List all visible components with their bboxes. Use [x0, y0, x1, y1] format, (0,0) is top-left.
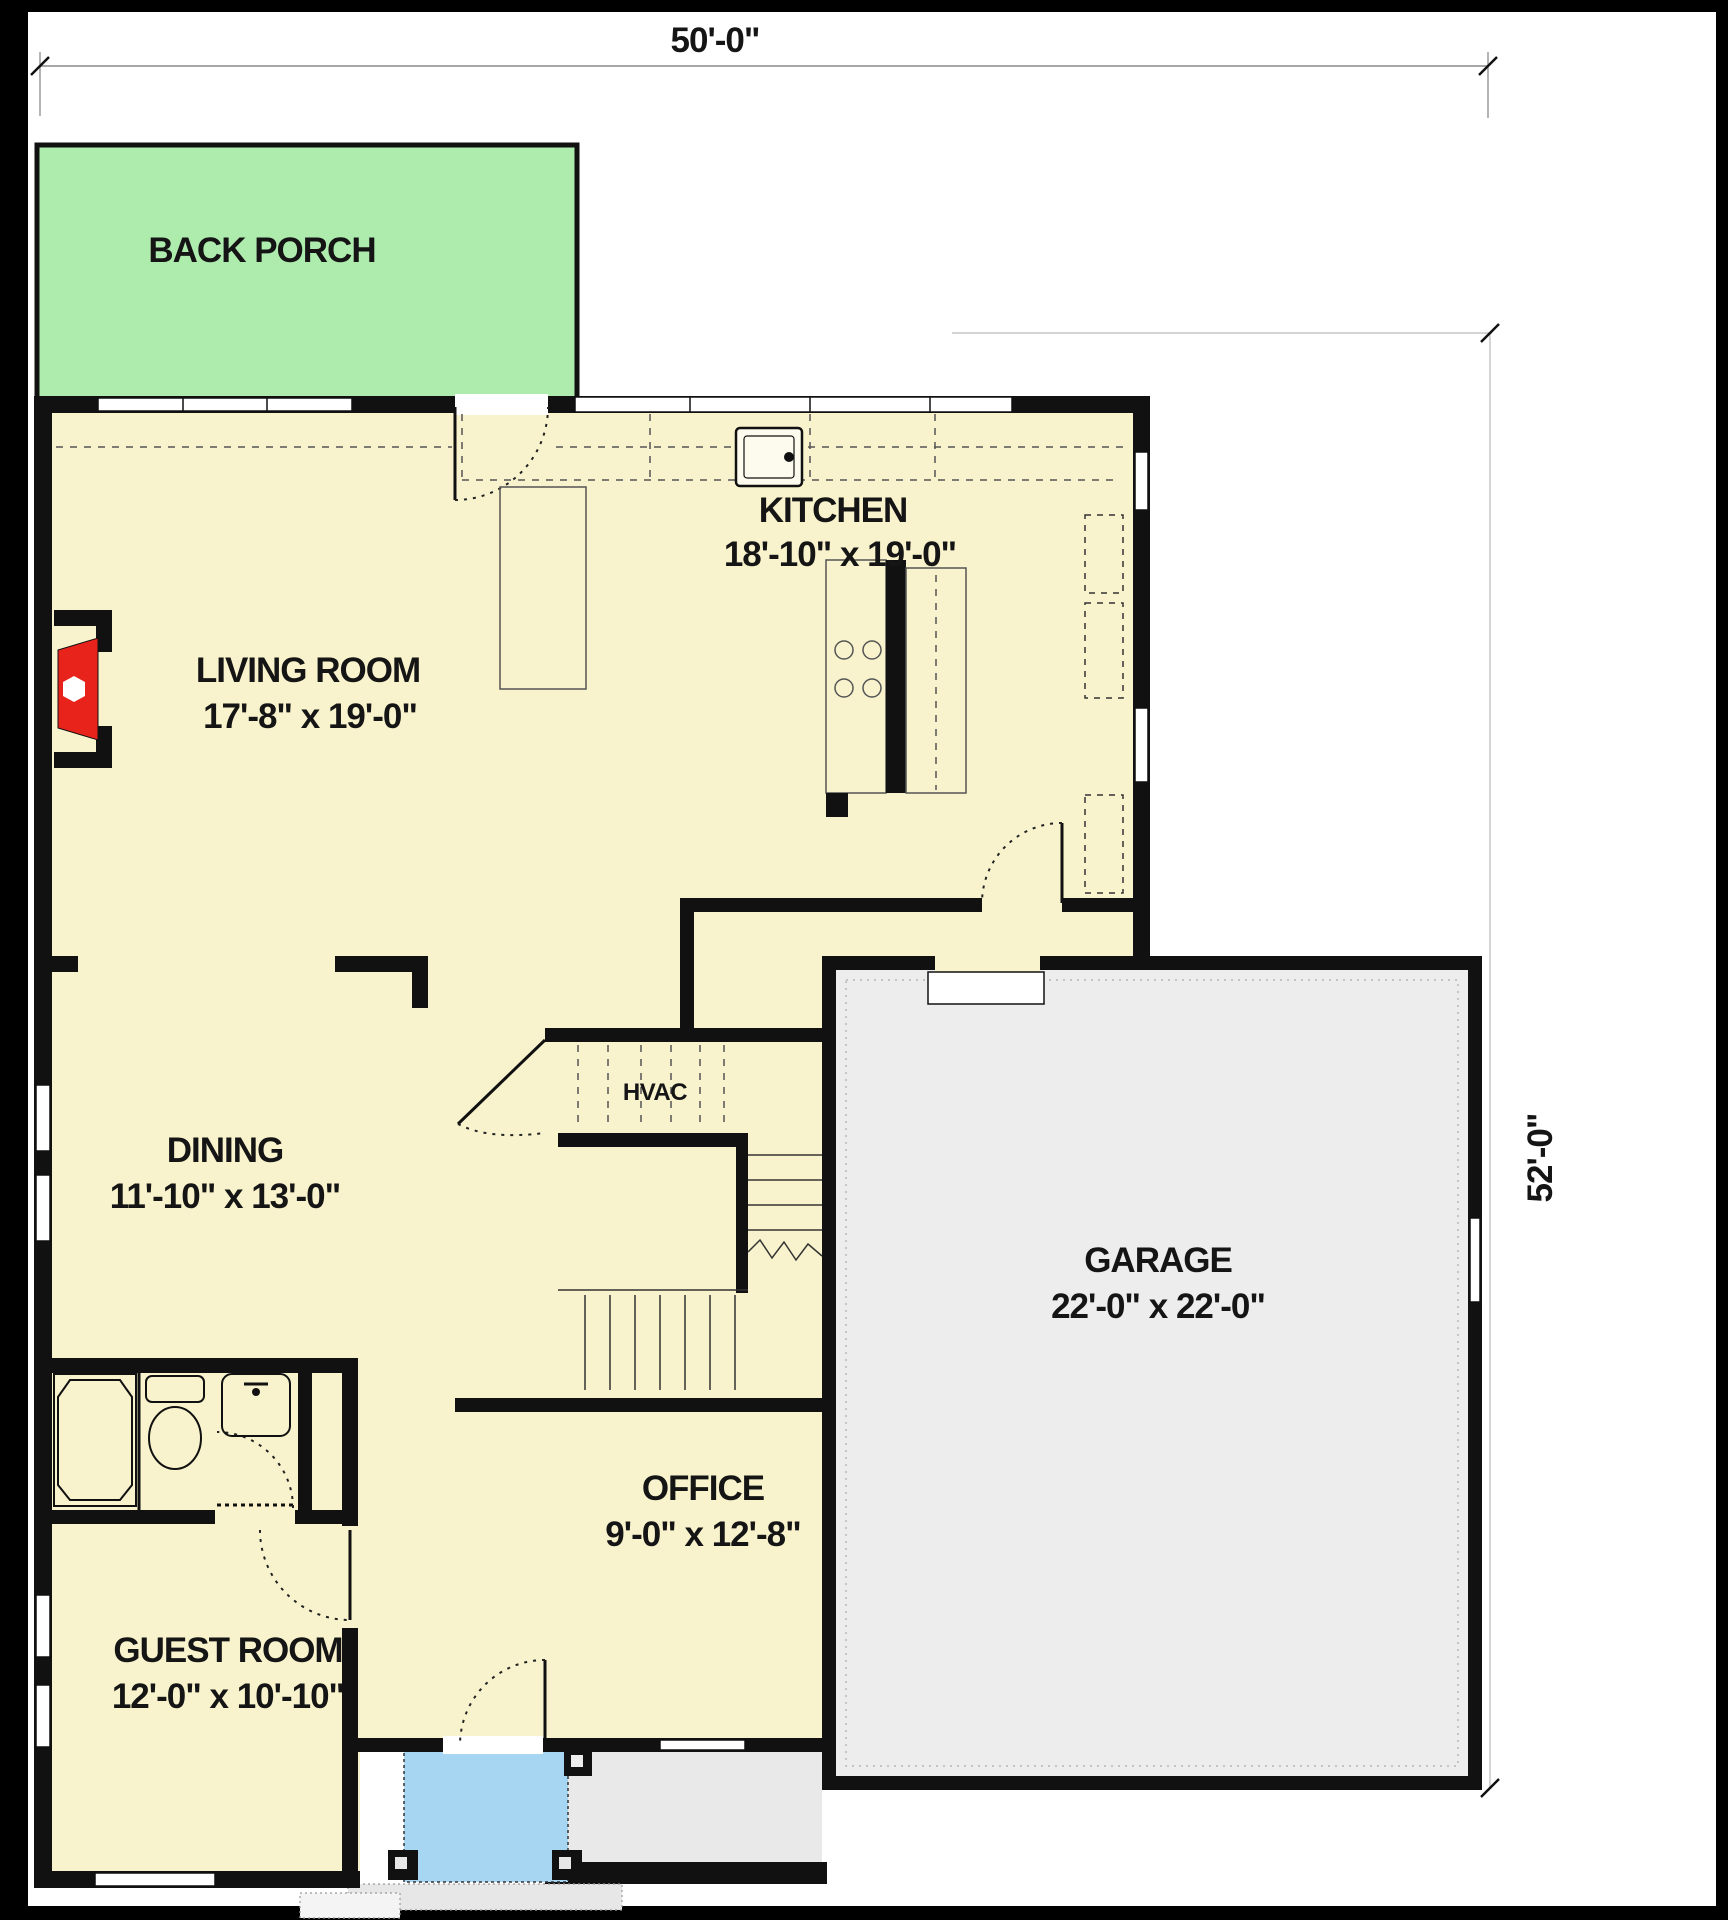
guest-room-size: 12'-0" x 10'-10": [112, 1677, 344, 1716]
front-walk-step: [300, 1893, 400, 1918]
hvac-label: HVAC: [623, 1079, 687, 1106]
kitchen-size: 18'-10" x 19'-0": [724, 535, 956, 574]
dining-size: 11'-10" x 13'-0": [110, 1177, 340, 1216]
living-room-size: 17'-8" x 19'-0": [203, 697, 417, 736]
floor-plan-page: 50'-0" 52'-0" BACK PORCH: [0, 0, 1728, 1920]
dining-label: DINING: [167, 1131, 284, 1170]
entry-walk: [568, 1752, 822, 1864]
floor-plan-drawing: 50'-0" 52'-0" BACK PORCH: [0, 0, 1728, 1920]
garage-floor: [836, 970, 1468, 1776]
garage-entry-step: [928, 972, 1044, 1004]
back-porch-area: [37, 145, 577, 401]
office-label: OFFICE: [642, 1469, 764, 1508]
kitchen-label: KITCHEN: [759, 491, 908, 530]
stoop-front-edge: [545, 1862, 827, 1884]
back-porch-label: BACK PORCH: [148, 231, 375, 270]
guest-room-label: GUEST ROOM: [113, 1631, 342, 1670]
kitchen-sink: [736, 428, 802, 486]
garage-label: GARAGE: [1084, 1241, 1232, 1280]
overall-width-dimension: 50'-0": [671, 21, 760, 60]
front-porch-area: [404, 1748, 568, 1882]
garage-size: 22'-0" x 22'-0": [1051, 1287, 1265, 1326]
overall-height-dimension: 52'-0": [1521, 1114, 1560, 1203]
living-room-label: LIVING ROOM: [196, 651, 420, 690]
office-size: 9'-0" x 12'-8": [605, 1515, 800, 1554]
